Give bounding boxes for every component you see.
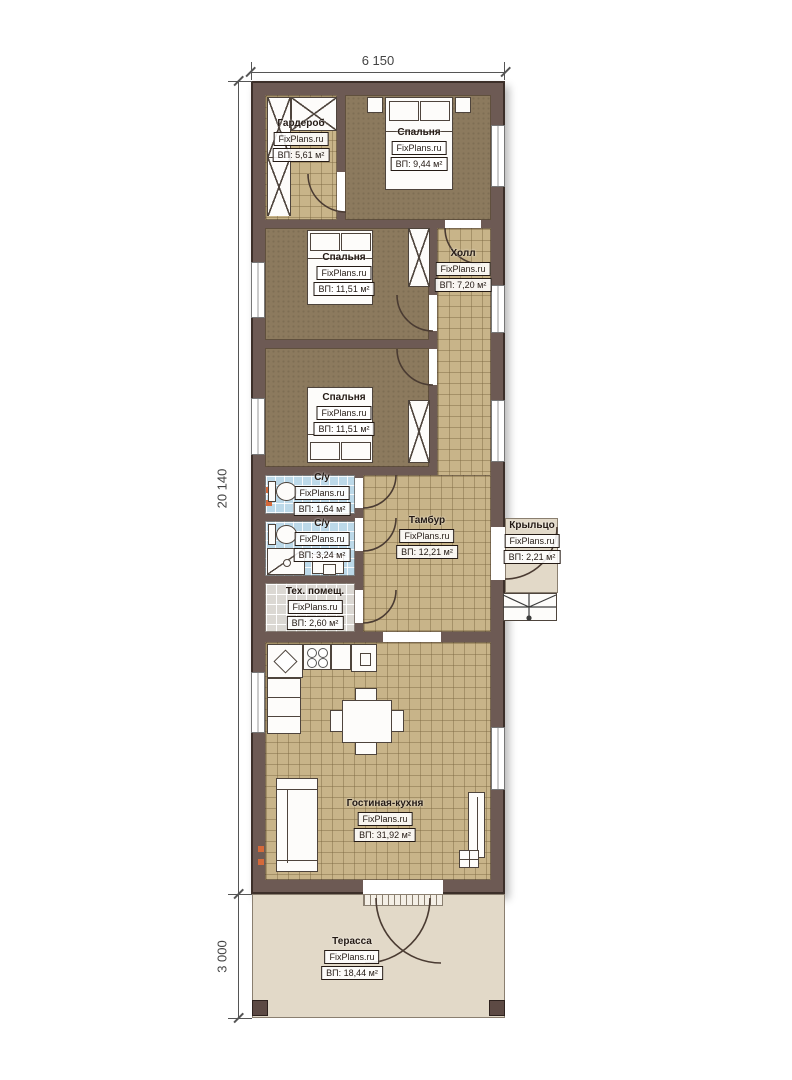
room-label-vestibule: Тамбур FixPlans.ru ВП: 12,21 м² <box>396 515 458 559</box>
shower-drain <box>283 559 291 567</box>
brand-watermark: FixPlans.ru <box>357 812 412 826</box>
counter-divider <box>268 716 300 717</box>
brand-watermark: FixPlans.ru <box>435 262 490 276</box>
room-area: ВП: 2,60 м² <box>287 616 344 630</box>
pillow <box>341 442 371 460</box>
fridge <box>351 644 377 672</box>
brand-watermark: FixPlans.ru <box>316 406 371 420</box>
brand-watermark: FixPlans.ru <box>399 529 454 543</box>
pillow <box>420 101 450 121</box>
room-label-hall: Холл FixPlans.ru ВП: 7,20 м² <box>435 248 492 292</box>
dimension-line-left <box>238 81 239 1018</box>
window-bedroom-1 <box>491 125 505 187</box>
terrace-post <box>252 1000 268 1016</box>
room-label-bedroom-2: Спальня FixPlans.ru ВП: 11,51 м² <box>313 252 374 296</box>
kitchen-counter <box>331 644 351 670</box>
room-area: ВП: 3,24 м² <box>294 548 351 562</box>
closet <box>408 400 430 463</box>
room-name: С/у <box>294 472 351 484</box>
room-label-bathroom-1: С/у FixPlans.ru ВП: 1,64 м² <box>294 472 351 516</box>
room-label-porch: Крыльцо FixPlans.ru ВП: 2,21 м² <box>504 520 561 564</box>
nightstand <box>455 97 471 113</box>
room-area: ВП: 11,51 м² <box>313 282 374 296</box>
counter-divider <box>268 697 300 698</box>
brand-watermark: FixPlans.ru <box>324 950 379 964</box>
tv-line <box>477 797 478 855</box>
extension-line <box>251 62 252 80</box>
room-label-bedroom-3: Спальня FixPlans.ru ВП: 11,51 м² <box>313 392 374 436</box>
door-opening-tech-room <box>355 590 363 623</box>
brand-watermark: FixPlans.ru <box>294 532 349 546</box>
burner <box>307 658 317 668</box>
side-table-cross <box>469 851 470 867</box>
door-opening-bedroom-2 <box>429 295 437 331</box>
room-name: С/у <box>294 518 351 530</box>
pillow <box>310 442 340 460</box>
dining-chair <box>355 741 377 755</box>
toilet-tank <box>268 524 276 545</box>
pillow <box>341 233 371 251</box>
window-living-left <box>251 672 265 733</box>
door-opening-bathroom-2 <box>355 518 363 551</box>
tv-stand <box>468 792 485 858</box>
burner <box>318 648 328 658</box>
closet-x <box>268 157 290 217</box>
terrace-threshold <box>363 894 443 906</box>
sofa-back-line <box>287 789 288 863</box>
kitchen-counter-left <box>267 678 301 734</box>
terrace-door-opening <box>363 880 443 894</box>
washer-door <box>323 564 336 575</box>
extension-line <box>228 894 252 895</box>
dimension-terrace-label: 3 000 <box>215 931 230 983</box>
room-area: ВП: 1,64 м² <box>294 502 351 516</box>
room-area: ВП: 12,21 м² <box>396 545 458 559</box>
window-hall-lower <box>491 400 505 462</box>
wall-marker <box>258 846 264 852</box>
door-opening-bedroom-3 <box>429 349 437 385</box>
room-label-tech-room: Тех. помещ. FixPlans.ru ВП: 2,60 м² <box>286 586 344 630</box>
room-label-bedroom-1: Спальня FixPlans.ru ВП: 9,44 м² <box>391 127 448 171</box>
room-area: ВП: 7,20 м² <box>435 278 492 292</box>
room-name: Спальня <box>313 252 374 264</box>
toilet-tank <box>268 481 276 502</box>
room-name: Гардероб <box>273 118 330 130</box>
room-name: Холл <box>435 248 492 260</box>
room-label-wardrobe: Гардероб FixPlans.ru ВП: 5,61 м² <box>273 118 330 162</box>
room-name: Спальня <box>391 127 448 139</box>
dimension-length-label: 20 140 <box>215 459 230 519</box>
brand-watermark: FixPlans.ru <box>273 132 328 146</box>
room-area: ВП: 2,21 м² <box>504 550 561 564</box>
pillow <box>389 101 419 121</box>
room-area: ВП: 11,51 м² <box>313 422 374 436</box>
pillow <box>310 233 340 251</box>
brand-watermark: FixPlans.ru <box>287 600 342 614</box>
brand-watermark: FixPlans.ru <box>316 266 371 280</box>
dining-chair <box>390 710 404 732</box>
room-name: Тамбур <box>396 515 458 527</box>
room-name: Крыльцо <box>504 520 561 532</box>
room-name: Тех. помещ. <box>286 586 344 598</box>
burner <box>318 658 328 668</box>
room-area: ВП: 5,61 м² <box>273 148 330 162</box>
burner <box>307 648 317 658</box>
brand-watermark: FixPlans.ru <box>294 486 349 500</box>
window-bedroom-2 <box>251 262 265 318</box>
room-label-living-kitchen: Гостиная-кухня FixPlans.ru ВП: 31,92 м² <box>347 798 424 842</box>
sink-basin <box>273 649 297 673</box>
sofa <box>276 778 318 872</box>
dimension-line-top <box>250 72 506 73</box>
door-opening-bathroom-1 <box>355 478 363 508</box>
stove <box>303 644 331 670</box>
extension-line <box>504 62 505 80</box>
extension-line <box>228 1018 252 1019</box>
porch-steps <box>503 593 557 621</box>
wall-marker <box>258 859 264 865</box>
passage-vestibule-living <box>383 632 441 642</box>
nightstand <box>367 97 383 113</box>
fridge-glyph <box>360 653 371 666</box>
sofa-armrest-line <box>277 860 317 861</box>
room-name: Терасса <box>321 936 383 948</box>
room-label-terrace: Терасса FixPlans.ru ВП: 18,44 м² <box>321 936 383 980</box>
dining-table <box>342 700 392 743</box>
extension-line <box>228 81 252 82</box>
room-name: Спальня <box>313 392 374 404</box>
kitchen-corner-sink <box>267 644 303 678</box>
sofa-armrest-line <box>277 789 317 790</box>
door-opening-bedroom-1 <box>445 220 481 228</box>
room-name: Гостиная-кухня <box>347 798 424 810</box>
side-table <box>459 850 479 868</box>
brand-watermark: FixPlans.ru <box>504 534 559 548</box>
closet <box>408 228 430 287</box>
window-bedroom-3 <box>251 398 265 455</box>
brand-watermark: FixPlans.ru <box>391 141 446 155</box>
room-area: ВП: 18,44 м² <box>321 966 383 980</box>
floor-plan: 6 150 20 140 3 000 <box>0 0 792 1080</box>
terrace-post <box>489 1000 505 1016</box>
window-hall-upper <box>491 285 505 333</box>
room-label-bathroom-2: С/у FixPlans.ru ВП: 3,24 м² <box>294 518 351 562</box>
door-opening-wardrobe <box>337 172 345 212</box>
window-living-right <box>491 727 505 790</box>
dimension-width-label: 6 150 <box>352 53 404 68</box>
room-area: ВП: 9,44 м² <box>391 157 448 171</box>
room-area: ВП: 31,92 м² <box>354 828 416 842</box>
